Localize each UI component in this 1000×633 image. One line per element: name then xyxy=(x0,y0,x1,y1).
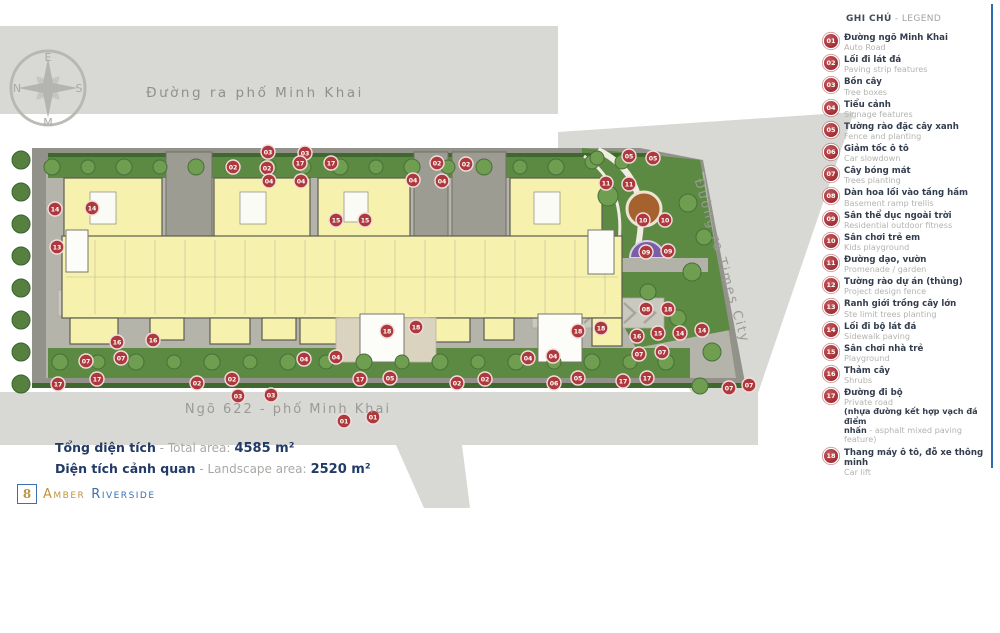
legend-item-text: Đường dạo, vườn Promenade / garden xyxy=(844,255,926,274)
legend-title-en: - LEGEND xyxy=(895,14,941,24)
plan-marker-04: 04 xyxy=(262,174,276,188)
tree xyxy=(679,194,697,212)
legend-item-number-badge: 07 xyxy=(824,167,838,181)
legend-item-note: nhấn - asphalt mixed paving feature) xyxy=(844,426,994,445)
legend-item: 13 Ranh giới trồng cây lớn Ste limit tre… xyxy=(824,299,994,318)
tree xyxy=(128,354,144,370)
tree xyxy=(369,160,383,174)
tree xyxy=(640,284,656,300)
svg-text:14: 14 xyxy=(51,206,60,213)
svg-text:02: 02 xyxy=(453,380,462,387)
svg-text:06: 06 xyxy=(550,380,559,387)
svg-text:11: 11 xyxy=(602,180,611,187)
tree xyxy=(692,378,708,394)
legend-item: 17 Đường đi bộ Private road (nhựa đường … xyxy=(824,388,994,444)
plan-marker-15: 15 xyxy=(651,326,665,340)
legend-item-text: Lối đi lát đá Paving strip features xyxy=(844,55,927,74)
svg-text:16: 16 xyxy=(149,337,158,344)
svg-text:17: 17 xyxy=(93,376,102,383)
plan-marker-17: 17 xyxy=(293,156,307,170)
tree xyxy=(12,311,30,329)
stair-room xyxy=(588,230,614,274)
svg-text:E: E xyxy=(45,51,52,64)
plan-marker-03: 03 xyxy=(261,145,275,159)
svg-text:02: 02 xyxy=(462,161,471,168)
plan-marker-04: 04 xyxy=(406,173,420,187)
tree xyxy=(471,355,485,369)
plan-marker-16: 16 xyxy=(146,333,160,347)
svg-text:17: 17 xyxy=(643,375,652,382)
svg-text:17: 17 xyxy=(619,378,628,385)
svg-text:17: 17 xyxy=(356,376,365,383)
legend-item-text: Sân chơi trẻ em Kids playground xyxy=(844,233,920,252)
svg-text:07: 07 xyxy=(658,349,667,356)
landscape-area-label-vi: Diện tích cảnh quan xyxy=(55,461,196,476)
legend-item-text: Sân chơi nhà trẻ Playground xyxy=(844,344,923,363)
plan-marker-07: 07 xyxy=(632,347,646,361)
legend-item-label-en: Tree boxes xyxy=(844,88,887,97)
tree xyxy=(703,343,721,361)
plan-marker-02: 02 xyxy=(226,160,240,174)
svg-text:07: 07 xyxy=(635,351,644,358)
plan-marker-13: 13 xyxy=(50,240,64,254)
svg-text:14: 14 xyxy=(698,327,707,334)
legend-item-label-en: Kids playground xyxy=(844,243,920,252)
legend-item-label-en: Ste limit trees planting xyxy=(844,310,956,319)
plan-marker-02: 02 xyxy=(450,376,464,390)
legend-item-label-vi: Thang máy ô tô, đỗ xe thông minh xyxy=(844,448,994,468)
logo-name-amber: Amber xyxy=(43,487,85,502)
plan-marker-05: 05 xyxy=(622,149,636,163)
stair-room xyxy=(66,230,88,272)
building-wing xyxy=(210,318,250,344)
svg-text:04: 04 xyxy=(265,178,274,185)
legend-item-note: (nhựa đường kết hợp vạch đá điểm xyxy=(844,407,994,426)
legend-item-text: Giảm tốc ô tô Car slowdown xyxy=(844,144,909,163)
plan-marker-11: 11 xyxy=(599,176,613,190)
svg-text:04: 04 xyxy=(297,178,306,185)
svg-text:18: 18 xyxy=(664,306,673,313)
plan-marker-17: 17 xyxy=(353,372,367,386)
legend-item-label-en: Shrubs xyxy=(844,376,890,385)
plan-marker-04: 04 xyxy=(546,349,560,363)
plan-marker-14: 14 xyxy=(673,326,687,340)
legend-item-text: Tiểu cảnh Signage features xyxy=(844,100,913,119)
plan-marker-07: 07 xyxy=(722,381,736,395)
plan-marker-18: 18 xyxy=(571,324,585,338)
legend-item-number-badge: 10 xyxy=(824,234,838,248)
plan-marker-04: 04 xyxy=(521,351,535,365)
tree xyxy=(188,159,204,175)
legend-item-number-badge: 18 xyxy=(824,449,838,463)
svg-text:18: 18 xyxy=(383,328,392,335)
plan-marker-14: 14 xyxy=(695,323,709,337)
legend-panel: GHI CHÚ - LEGEND 01 Đường ngõ Minh Khai … xyxy=(824,14,994,480)
svg-text:02: 02 xyxy=(193,380,202,387)
legend-item-text: Thang máy ô tô, đỗ xe thông minh Car lif… xyxy=(844,448,994,477)
legend-item-label-en: Project design fence xyxy=(844,287,963,296)
legend-item: 15 Sân chơi nhà trẻ Playground xyxy=(824,344,994,363)
svg-text:08: 08 xyxy=(642,306,651,313)
legend-item: 03 Bồn cây Tree boxes xyxy=(824,77,994,96)
logo-name-riverside: Riverside xyxy=(91,487,155,502)
tree xyxy=(12,183,30,201)
svg-text:13: 13 xyxy=(53,244,62,251)
svg-text:03: 03 xyxy=(234,393,243,400)
tree xyxy=(12,375,30,393)
tree xyxy=(548,159,564,175)
svg-text:07: 07 xyxy=(117,355,126,362)
plan-marker-04: 04 xyxy=(297,352,311,366)
total-area-value: 4585 m² xyxy=(234,441,294,456)
legend-item-text: Đường ngõ Minh Khai Auto Road xyxy=(844,33,948,52)
legend-item-label-en: Fence and planting xyxy=(844,132,959,141)
svg-text:02: 02 xyxy=(433,160,442,167)
legend-item-text: Sân thể dục ngoài trời Residential outdo… xyxy=(844,211,952,230)
legend-item-label-en: Sidewalk paving xyxy=(844,332,916,341)
legend-item-number-badge: 09 xyxy=(824,212,838,226)
plan-marker-02: 02 xyxy=(190,376,204,390)
svg-text:17: 17 xyxy=(54,381,63,388)
tree xyxy=(81,160,95,174)
legend-item: 16 Thảm cây Shrubs xyxy=(824,366,994,385)
page-border-line xyxy=(991,4,993,468)
legend-item: 01 Đường ngõ Minh Khai Auto Road xyxy=(824,33,994,52)
legend-item: 06 Giảm tốc ô tô Car slowdown xyxy=(824,144,994,163)
legend-item-number-badge: 01 xyxy=(824,34,838,48)
legend-item-number-badge: 16 xyxy=(824,367,838,381)
legend-item-text: Tường rào đặc cây xanh Fence and plantin… xyxy=(844,122,959,141)
svg-text:03: 03 xyxy=(267,392,276,399)
plan-marker-04: 04 xyxy=(435,174,449,188)
landscape-area-value: 2520 m² xyxy=(311,462,371,477)
plan-marker-18: 18 xyxy=(409,320,423,334)
svg-text:02: 02 xyxy=(481,376,490,383)
svg-text:15: 15 xyxy=(654,330,663,337)
legend-item-text: Đường đi bộ Private road (nhựa đường kết… xyxy=(844,388,994,444)
tree xyxy=(44,159,60,175)
building-wing xyxy=(484,318,514,340)
plan-marker-02: 02 xyxy=(260,161,274,175)
plan-marker-17: 17 xyxy=(90,372,104,386)
building-wing xyxy=(300,318,340,344)
plan-marker-07: 07 xyxy=(742,378,756,392)
tree xyxy=(167,355,181,369)
tree xyxy=(204,354,220,370)
legend-item: 05 Tường rào đặc cây xanh Fence and plan… xyxy=(824,122,994,141)
road-south-branch xyxy=(396,445,470,508)
tree xyxy=(432,354,448,370)
legend-item-label-en: Trees planting xyxy=(844,176,911,185)
tree xyxy=(12,279,30,297)
svg-text:18: 18 xyxy=(574,328,583,335)
svg-text:15: 15 xyxy=(332,217,341,224)
svg-text:05: 05 xyxy=(574,375,583,382)
plan-marker-11: 11 xyxy=(622,177,636,191)
svg-text:02: 02 xyxy=(229,164,238,171)
svg-text:04: 04 xyxy=(300,356,309,363)
plan-marker-10: 10 xyxy=(658,213,672,227)
legend-item: 08 Dàn hoa lối vào tầng hầm Basement ram… xyxy=(824,188,994,207)
legend-item-text: Bồn cây Tree boxes xyxy=(844,77,887,96)
legend-item-number-badge: 12 xyxy=(824,278,838,292)
tree xyxy=(356,354,372,370)
svg-text:18: 18 xyxy=(412,324,421,331)
legend-item-label-en: Promenade / garden xyxy=(844,265,926,274)
legend-item-number-badge: 11 xyxy=(824,256,838,270)
svg-text:16: 16 xyxy=(113,339,122,346)
tree xyxy=(243,355,257,369)
svg-text:04: 04 xyxy=(409,177,418,184)
plan-marker-04: 04 xyxy=(329,350,343,364)
hedge-north xyxy=(48,153,648,157)
plan-marker-14: 14 xyxy=(85,201,99,215)
plan-marker-09: 09 xyxy=(661,244,675,258)
plan-marker-02: 02 xyxy=(459,157,473,171)
legend-item-number-badge: 02 xyxy=(824,56,838,70)
tree xyxy=(476,159,492,175)
svg-text:05: 05 xyxy=(625,153,634,160)
svg-text:04: 04 xyxy=(332,354,341,361)
plan-marker-05: 05 xyxy=(646,151,660,165)
legend-item-text: Ranh giới trồng cây lớn Ste limit trees … xyxy=(844,299,956,318)
tree xyxy=(590,151,604,165)
legend-item-number-badge: 14 xyxy=(824,323,838,337)
plan-marker-08: 08 xyxy=(639,302,653,316)
plan-marker-05: 05 xyxy=(383,371,397,385)
legend-item-text: Cây bóng mát Trees planting xyxy=(844,166,911,185)
legend-item: 11 Đường dạo, vườn Promenade / garden xyxy=(824,255,994,274)
svg-text:02: 02 xyxy=(263,165,272,172)
legend-item-label-en: Car slowdown xyxy=(844,154,909,163)
svg-text:14: 14 xyxy=(676,330,685,337)
legend-item-number-badge: 04 xyxy=(824,101,838,115)
road-label-ngo-622: Ngõ 622 - phố Minh Khai xyxy=(185,402,391,417)
plan-marker-18: 18 xyxy=(661,302,675,316)
svg-text:01: 01 xyxy=(340,418,349,425)
legend-item: 18 Thang máy ô tô, đỗ xe thông minh Car … xyxy=(824,448,994,477)
svg-text:N: N xyxy=(13,82,21,95)
plan-marker-14: 14 xyxy=(48,202,62,216)
total-area-label-en: Total area: xyxy=(168,441,231,455)
plan-marker-02: 02 xyxy=(225,372,239,386)
svg-text:09: 09 xyxy=(664,248,673,255)
svg-text:10: 10 xyxy=(639,217,648,224)
legend-item: 12 Tường rào dự án (thủng) Project desig… xyxy=(824,277,994,296)
legend-item-number-badge: 08 xyxy=(824,189,838,203)
plan-marker-16: 16 xyxy=(110,335,124,349)
legend-item: 10 Sân chơi trẻ em Kids playground xyxy=(824,233,994,252)
plan-marker-17: 17 xyxy=(51,377,65,391)
landscape-area-line: Diện tích cảnh quan - Landscape area:252… xyxy=(55,458,371,477)
svg-text:17: 17 xyxy=(327,160,336,167)
svg-text:07: 07 xyxy=(725,385,734,392)
svg-text:04: 04 xyxy=(438,178,447,185)
legend-item-text: Thảm cây Shrubs xyxy=(844,366,890,385)
svg-text:15: 15 xyxy=(361,217,370,224)
amber-riverside-logo: 8 Amber Riverside xyxy=(17,484,156,504)
legend-item-number-badge: 05 xyxy=(824,123,838,137)
svg-text:04: 04 xyxy=(524,355,533,362)
svg-text:14: 14 xyxy=(88,205,97,212)
plan-marker-06: 06 xyxy=(547,376,561,390)
tree xyxy=(395,355,409,369)
legend-item-number-badge: 17 xyxy=(824,389,838,403)
legend-item: 04 Tiểu cảnh Signage features xyxy=(824,100,994,119)
svg-text:07: 07 xyxy=(82,358,91,365)
plan-marker-04: 04 xyxy=(294,174,308,188)
plan-marker-02: 02 xyxy=(430,156,444,170)
plan-marker-17: 17 xyxy=(640,371,654,385)
tree xyxy=(584,354,600,370)
legend-item-label-en: Signage features xyxy=(844,110,913,119)
plan-marker-05: 05 xyxy=(571,371,585,385)
tree xyxy=(12,343,30,361)
plan-marker-17: 17 xyxy=(616,374,630,388)
legend-item: 14 Lối đi bộ lát đá Sidewalk paving xyxy=(824,322,994,341)
logo-8-icon: 8 xyxy=(17,484,37,504)
tree xyxy=(280,354,296,370)
tree xyxy=(52,354,68,370)
svg-text:04: 04 xyxy=(549,353,558,360)
total-area-label-vi: Tổng diện tích xyxy=(55,440,156,455)
legend-item-label-en: Paving strip features xyxy=(844,65,927,74)
legend-title: GHI CHÚ - LEGEND xyxy=(846,14,994,24)
road-label-minh-khai: Đường ra phố Minh Khai xyxy=(146,84,364,101)
tree xyxy=(12,215,30,233)
building-wing xyxy=(262,318,296,340)
legend-item-text: Lối đi bộ lát đá Sidewalk paving xyxy=(844,322,916,341)
svg-text:18: 18 xyxy=(597,325,606,332)
plan-marker-16: 16 xyxy=(630,329,644,343)
svg-text:10: 10 xyxy=(661,217,670,224)
legend-item-label-en: Residential outdoor fitness xyxy=(844,221,952,230)
legend-item-label-en: Car lift xyxy=(844,468,994,477)
svg-text:07: 07 xyxy=(745,382,754,389)
legend-item-text: Tường rào dự án (thủng) Project design f… xyxy=(844,277,963,296)
legend-item-number-badge: 06 xyxy=(824,145,838,159)
svg-text:17: 17 xyxy=(296,160,305,167)
plan-marker-18: 18 xyxy=(594,321,608,335)
plan-marker-17: 17 xyxy=(324,156,338,170)
tree xyxy=(116,159,132,175)
legend-item-label-en: Basement ramp trellis xyxy=(844,199,968,208)
legend-item: 02 Lối đi lát đá Paving strip features xyxy=(824,55,994,74)
tree xyxy=(513,160,527,174)
plan-marker-07: 07 xyxy=(79,354,93,368)
svg-text:05: 05 xyxy=(386,375,395,382)
legend-item-label-en: Playground xyxy=(844,354,923,363)
site-plan-page: 0303171702020404020204040505111114141315… xyxy=(0,0,1000,633)
legend-item-number-badge: 13 xyxy=(824,300,838,314)
plan-marker-10: 10 xyxy=(636,213,650,227)
svg-text:03: 03 xyxy=(264,149,273,156)
legend-item-number-badge: 03 xyxy=(824,78,838,92)
plan-marker-07: 07 xyxy=(655,345,669,359)
legend-item-label-en: Auto Road xyxy=(844,43,948,52)
tree xyxy=(12,151,30,169)
plan-marker-07: 07 xyxy=(114,351,128,365)
legend-items: 01 Đường ngõ Minh Khai Auto Road 02 Lối … xyxy=(824,33,994,477)
area-summary: Tổng diện tích - Total area:4585 m² Diện… xyxy=(55,437,371,479)
svg-text:11: 11 xyxy=(625,181,634,188)
plan-marker-02: 02 xyxy=(478,372,492,386)
svg-text:05: 05 xyxy=(649,155,658,162)
legend-item: 09 Sân thể dục ngoài trời Residential ou… xyxy=(824,211,994,230)
plan-marker-15: 15 xyxy=(358,213,372,227)
svg-text:02: 02 xyxy=(228,376,237,383)
legend-item: 07 Cây bóng mát Trees planting xyxy=(824,166,994,185)
svg-text:16: 16 xyxy=(633,333,642,340)
tree xyxy=(683,263,701,281)
plan-marker-15: 15 xyxy=(329,213,343,227)
tree xyxy=(153,160,167,174)
svg-text:09: 09 xyxy=(642,249,651,256)
plan-marker-03: 03 xyxy=(264,388,278,402)
tree xyxy=(12,247,30,265)
svg-text:S: S xyxy=(76,82,83,95)
total-area-line: Tổng diện tích - Total area:4585 m² xyxy=(55,437,371,456)
legend-title-vi: GHI CHÚ xyxy=(846,14,892,24)
plan-marker-09: 09 xyxy=(639,245,653,259)
landscape-area-label-en: Landscape area: xyxy=(207,462,306,476)
legend-item-text: Dàn hoa lối vào tầng hầm Basement ramp t… xyxy=(844,188,968,207)
plan-marker-18: 18 xyxy=(380,324,394,338)
plan-marker-03: 03 xyxy=(231,389,245,403)
legend-item-number-badge: 15 xyxy=(824,345,838,359)
svg-text:M: M xyxy=(43,116,53,129)
